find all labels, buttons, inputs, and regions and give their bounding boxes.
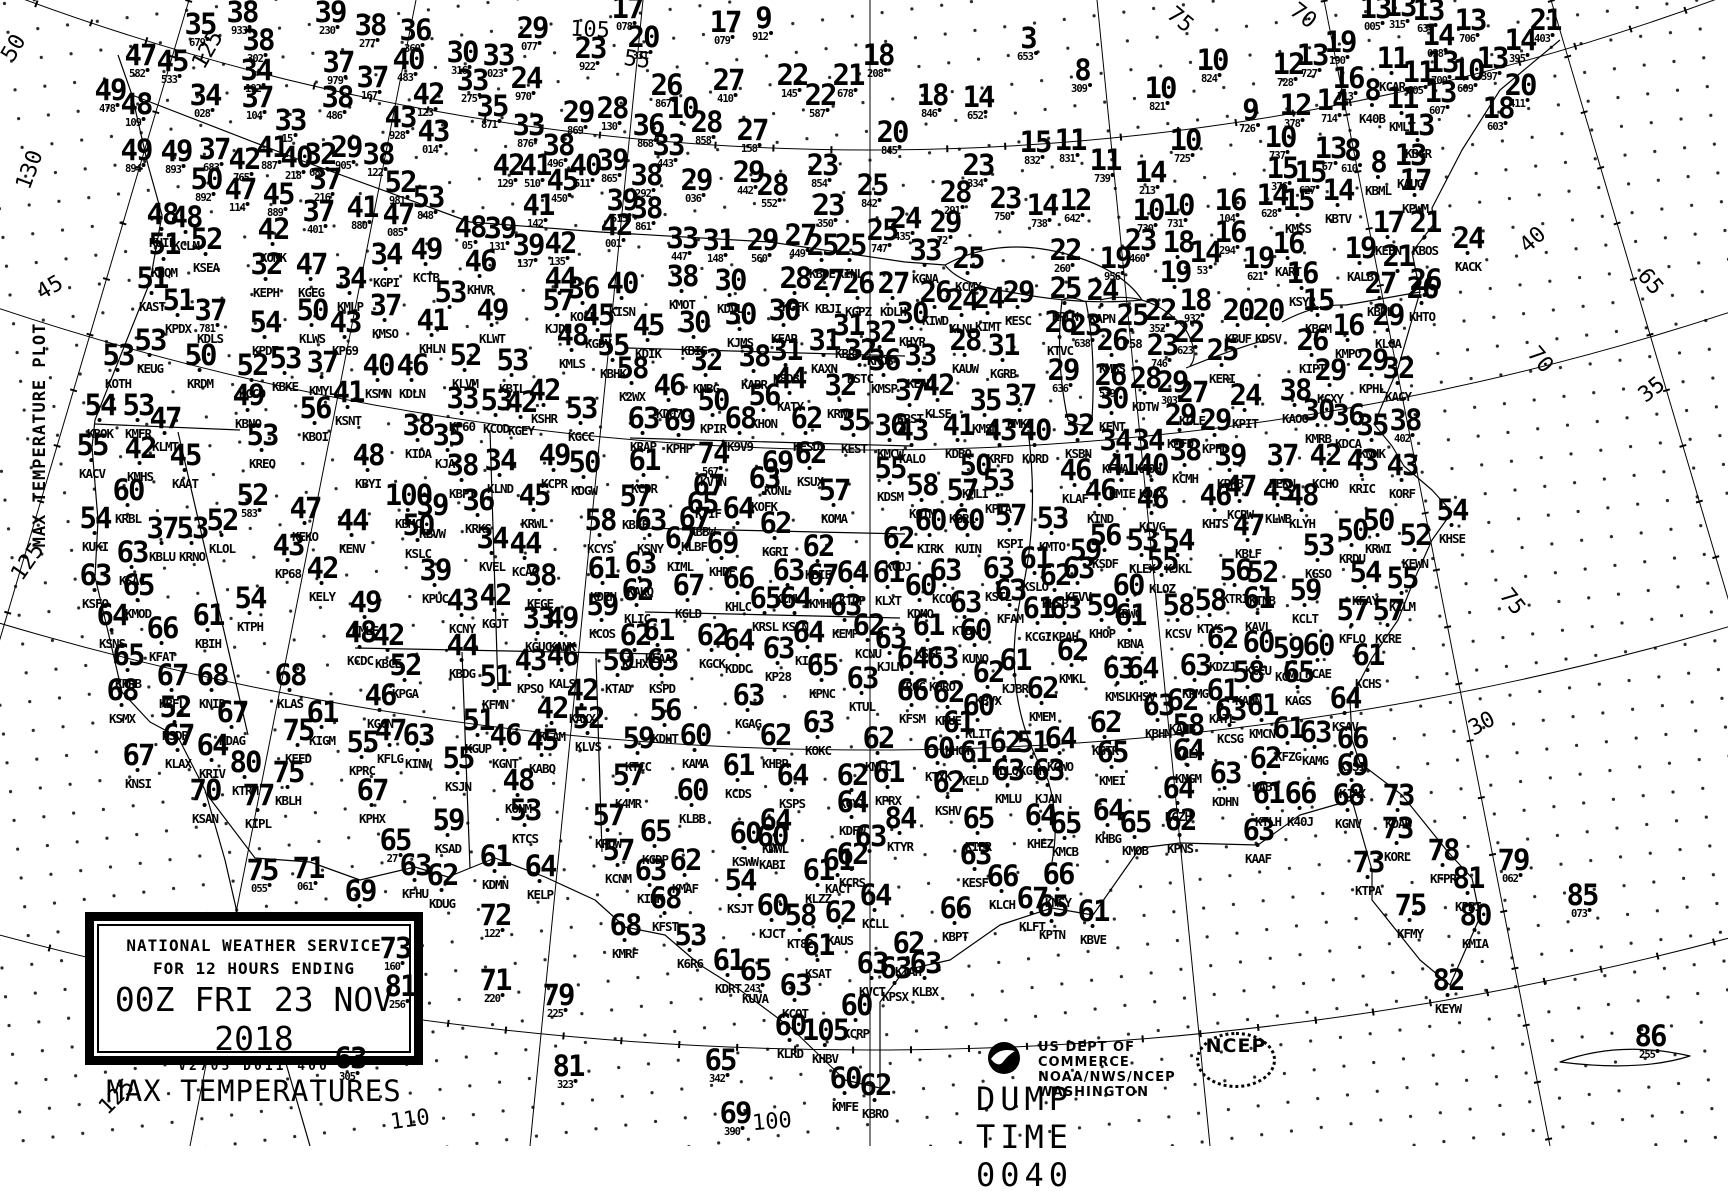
station-num: 587: [809, 108, 825, 120]
station-plot: 49893: [161, 139, 192, 171]
station-temp: 42: [480, 583, 511, 608]
station-dot-icon: [1376, 533, 1380, 537]
station-temp: 51: [163, 288, 194, 313]
station-dot-icon: [793, 998, 797, 1002]
station-dot-icon: [1140, 681, 1144, 685]
station-id: KBPT: [940, 929, 971, 944]
station-plot: 63KMLU: [993, 758, 1024, 806]
station-dot-icon: [1121, 271, 1125, 275]
station-dot-icon: [258, 508, 262, 512]
station-temp: 46: [1137, 486, 1168, 511]
station-dot-icon: [120, 703, 124, 707]
station-temp: 52: [207, 508, 238, 533]
station-dot-icon: [263, 335, 267, 339]
station-plot: 44KENV: [337, 508, 368, 556]
station-id: KLZZ: [803, 891, 834, 906]
station-num: 028: [194, 108, 210, 120]
station-plot: 23750: [990, 186, 1021, 218]
station-mid: 832: [1020, 155, 1051, 162]
station-dot-icon: [1150, 511, 1154, 515]
station-plot: 10725: [1170, 128, 1201, 160]
station-temp: 63: [647, 648, 678, 673]
station-temp: 75: [283, 718, 314, 743]
station-plot: 61KDMN: [480, 844, 511, 892]
station-dot-icon: [574, 1079, 578, 1083]
station-dot-icon: [731, 35, 735, 39]
station-plot: 11739: [1090, 148, 1121, 180]
station-temp: 79: [1498, 848, 1529, 873]
station-dot-icon: [1071, 263, 1075, 267]
station-plot: 37979: [323, 50, 354, 82]
station-temp: 64: [723, 496, 754, 521]
station-plot: 64: [723, 496, 754, 528]
station-temp: 55: [347, 730, 378, 755]
station-id: KDHT: [650, 731, 681, 746]
station-temp: 48: [503, 768, 534, 793]
station-dot-icon: [1193, 678, 1197, 682]
station-mid: 747: [867, 243, 898, 250]
station-id: KLGA: [1373, 336, 1404, 351]
station-temp: 28: [757, 173, 788, 198]
station-plot: 24970: [511, 66, 542, 98]
station-temp: 64: [837, 790, 868, 815]
station-temp: 54: [235, 586, 266, 611]
station-dot-icon: [826, 293, 830, 297]
station-dot-icon: [478, 274, 482, 278]
station-dot-icon: [376, 378, 380, 382]
station-temp: 47: [1233, 513, 1264, 538]
station-plot: 41142: [523, 193, 554, 225]
station-temp: 64: [97, 603, 128, 628]
station-num: 821: [1149, 101, 1165, 113]
station-plot: 52583: [237, 483, 268, 515]
station-plot: 71061: [293, 856, 324, 888]
station-temp: 62: [1027, 676, 1058, 701]
station-plot: 60KIRK: [915, 508, 946, 556]
station-temp: 15: [1283, 188, 1314, 213]
station-plot: 42KGJT: [480, 583, 511, 631]
station-dot-icon: [178, 74, 182, 78]
station-dot-icon: [296, 743, 300, 747]
station-id: K6R6: [675, 956, 706, 971]
station-temp: 61: [913, 613, 944, 638]
station-temp: 86: [1635, 1024, 1666, 1049]
station-dot-icon: [536, 631, 540, 635]
station-dot-icon: [1069, 383, 1073, 387]
station-temp: 63: [763, 636, 794, 661]
station-id: K9V9: [725, 439, 756, 454]
station-num: 014: [422, 144, 438, 156]
station-temp: 60: [1243, 630, 1274, 655]
station-num: 53: [1197, 265, 1208, 277]
station-temp: 43: [985, 418, 1016, 443]
station-num: 483: [397, 72, 413, 84]
station-temp: 38: [243, 28, 274, 53]
station-plot: 16294: [1215, 220, 1246, 252]
station-dot-icon: [1333, 161, 1337, 165]
station-dot-icon: [591, 178, 595, 182]
station-mid: 230: [315, 25, 346, 32]
station-temp: 38: [322, 85, 353, 110]
station-temp: 65: [1037, 894, 1068, 919]
station-dot-icon: [303, 521, 307, 525]
station-dot-icon: [1191, 153, 1195, 157]
station-temp: 60: [1303, 633, 1334, 658]
station-plot: 43KP68: [273, 533, 304, 581]
station-plot: 38486: [322, 85, 353, 117]
station-num: 255: [1639, 1049, 1655, 1061]
station-temp: 48: [557, 323, 588, 348]
station-dot-icon: [908, 403, 912, 407]
station-dot-icon: [556, 313, 560, 317]
station-id: KMLS: [557, 356, 588, 371]
station-temp: 32: [1063, 413, 1094, 438]
station-dot-icon: [504, 68, 508, 72]
station-plot: 50KRDU: [1337, 518, 1368, 566]
station-dot-icon: [246, 202, 250, 206]
station-plot: 65KMOB: [1120, 810, 1151, 858]
station-num: 331: [632, 50, 648, 62]
station-dot-icon: [1081, 213, 1085, 217]
station-plot: 55KACV: [77, 433, 108, 481]
station-num: 275: [461, 93, 477, 105]
station-temp: 63: [803, 710, 834, 735]
station-temp: 11: [1055, 128, 1086, 153]
station-temp: 42: [537, 696, 568, 721]
station-temp: 12: [1280, 93, 1311, 118]
station-plot: 64KCLL: [860, 883, 891, 931]
station-temp: 28: [950, 328, 981, 353]
station-plot: 28552: [757, 173, 788, 205]
station-plot: 53KBKE: [270, 346, 301, 394]
station-id: KUKI: [80, 539, 111, 554]
station-temp: 60: [830, 1066, 861, 1091]
station-mid: 078: [612, 21, 643, 28]
station-temp: 53: [413, 185, 444, 210]
station-plot: 59KTAD: [603, 648, 634, 696]
station-temp: 14: [963, 85, 994, 110]
station-num: 078: [616, 21, 632, 33]
station-num: 714: [1321, 113, 1337, 125]
station-plot: 18208: [863, 43, 894, 75]
station-temp: 64: [860, 883, 891, 908]
station-dot-icon: [768, 253, 772, 257]
station-num: 832: [1024, 155, 1040, 167]
station-plot: 79062: [1498, 848, 1529, 880]
station-temp: 49: [161, 139, 192, 164]
station-temp: 54: [85, 393, 116, 418]
station-id: KIPL: [243, 816, 274, 831]
station-temp: 53: [675, 923, 706, 948]
station-temp: 30: [769, 298, 800, 323]
station-dot-icon: [313, 421, 317, 425]
station-id: K40J: [1285, 814, 1316, 829]
station-plot: 66KFSM: [897, 678, 928, 726]
station-id: KELY: [307, 589, 338, 604]
station-dot-icon: [1263, 771, 1267, 775]
station-plot: 22352: [1145, 298, 1176, 330]
station-dot-icon: [848, 258, 852, 262]
station-dot-icon: [493, 689, 497, 693]
station-temp: 47: [1225, 474, 1256, 499]
station-dot-icon: [726, 973, 730, 977]
station-temp: 57: [995, 503, 1026, 528]
station-mid: 854: [807, 178, 838, 185]
station-temp: 42: [545, 231, 576, 256]
station-temp: 27: [1365, 271, 1396, 296]
station-mid: 148: [703, 253, 734, 260]
station-plot: 68KMRF: [610, 913, 641, 961]
station-temp: 54: [1437, 498, 1468, 523]
station-temp: 22: [777, 63, 808, 88]
station-id: KSMX: [107, 711, 138, 726]
station-dot-icon: [966, 533, 970, 537]
station-temp: 63: [773, 558, 804, 583]
station-temp: 53: [1037, 506, 1068, 531]
station-mid: 845: [877, 145, 908, 152]
station-dot-icon: [206, 37, 210, 41]
station-id: KSJN: [443, 779, 474, 794]
station-temp: 23: [990, 186, 1021, 211]
station-num: 713: [1337, 91, 1353, 103]
station-plot: 33023: [483, 43, 514, 75]
station-num: 845: [881, 145, 897, 157]
station-temp: 61: [723, 753, 754, 778]
station-dot-icon: [710, 648, 714, 652]
legend-agency-line: NATIONAL WEATHER SERVICE: [99, 936, 409, 955]
station-temp: 60: [113, 478, 144, 503]
station-plot: 42001: [601, 213, 632, 245]
station-dot-icon: [1350, 543, 1354, 547]
station-dot-icon: [622, 238, 626, 242]
station-temp: 75: [273, 760, 304, 785]
station-num: 073: [1571, 908, 1587, 920]
station-dot-icon: [1088, 83, 1092, 87]
station-temp: 13: [1297, 43, 1328, 68]
station-temp: 69: [1337, 753, 1368, 778]
station-dot-icon: [1063, 621, 1067, 625]
station-mid: 728: [1273, 77, 1304, 84]
station-temp: 39: [485, 216, 516, 241]
station-plot: 51KFMN: [480, 664, 511, 712]
station-mid: 552: [757, 198, 788, 205]
station-id: KMOB: [1120, 843, 1151, 858]
station-temp: 43: [273, 533, 304, 558]
station-temp: 43: [330, 310, 361, 335]
station-dot-icon: [416, 748, 420, 752]
station-plot: 54KTPH: [235, 586, 266, 634]
station-temp: 42: [413, 82, 444, 107]
station-temp: 37: [310, 167, 341, 192]
station-dot-icon: [1441, 863, 1445, 867]
station-dot-icon: [216, 323, 220, 327]
station-mid: 167: [357, 90, 388, 97]
station-dot-icon: [852, 433, 856, 437]
station-dot-icon: [1110, 353, 1114, 357]
station-temp: 71: [293, 856, 324, 881]
station-dot-icon: [286, 558, 290, 562]
station-dot-icon: [564, 1008, 568, 1012]
station-num: 230: [319, 25, 335, 37]
station-plot: 61KTLH: [1253, 781, 1284, 829]
station-temp: 67: [217, 700, 248, 725]
station-id: KLAS: [275, 696, 306, 711]
station-dot-icon: [1184, 218, 1188, 222]
station-id: KCOS: [587, 626, 618, 641]
station-temp: 80: [230, 750, 261, 775]
station-temp: 8: [1359, 78, 1385, 103]
station-id: KBHM: [1143, 726, 1174, 741]
station-dot-icon: [1111, 173, 1115, 177]
legend-box: NATIONAL WEATHER SERVICE FOR 12 HOURS EN…: [85, 912, 423, 1065]
station-dot-icon: [823, 1043, 827, 1047]
station-dot-icon: [746, 708, 750, 712]
station-temp: 69: [345, 879, 376, 904]
station-num: 894: [125, 163, 141, 175]
station-num: 603: [1487, 121, 1503, 133]
station-temp: 50: [185, 343, 216, 368]
station-dot-icon: [711, 413, 715, 417]
station-num: 055: [251, 883, 267, 895]
station-temp: 30: [725, 302, 756, 327]
station-dot-icon: [378, 90, 382, 94]
station-dot-icon: [283, 371, 287, 375]
station-temp: 49: [547, 606, 578, 631]
station-dot-icon: [1413, 548, 1417, 552]
station-temp: 15: [1267, 156, 1298, 181]
station-dot-icon: [738, 893, 742, 897]
station-dot-icon: [538, 588, 542, 592]
station-dot-icon: [736, 521, 740, 525]
station-plot: 40483: [393, 47, 424, 79]
station-dot-icon: [360, 755, 364, 759]
station-plot: 57KCNM: [603, 838, 634, 886]
station-temp: 29: [930, 210, 961, 235]
station-temp: 62: [670, 848, 701, 873]
station-dot-icon: [798, 928, 802, 932]
station-plot: 50892: [191, 167, 222, 199]
station-id: KBTV: [1323, 211, 1354, 226]
station-temp: 65: [807, 653, 838, 678]
station-plot: 81256: [385, 974, 416, 1006]
station-plot: 62KMEM: [1027, 676, 1058, 724]
station-temp: 29: [1357, 348, 1388, 373]
station-dot-icon: [1208, 265, 1212, 269]
station-id: KLXT: [873, 593, 904, 608]
station-temp: 41: [943, 413, 974, 438]
station-mid: 603: [1483, 121, 1514, 128]
station-plot: 60KRBL: [113, 478, 144, 526]
station-dot-icon: [720, 556, 724, 560]
station-plot: 43014: [418, 119, 449, 151]
station-dot-icon: [822, 353, 826, 357]
station-plot: 34028: [190, 83, 221, 115]
station-mid: 243: [740, 983, 771, 990]
station-dot-icon: [641, 431, 645, 435]
station-dot-icon: [1323, 468, 1327, 472]
station-plot: 42135: [545, 231, 576, 263]
station-temp: 53: [983, 468, 1014, 493]
station-num: 460: [1129, 253, 1145, 265]
station-plot: 63KDHN: [1210, 761, 1241, 809]
station-plot: 62KMKL: [1057, 638, 1088, 686]
station-dot-icon: [460, 411, 464, 415]
station-dot-icon: [973, 765, 977, 769]
station-temp: 16: [1215, 220, 1246, 245]
station-temp: 63: [80, 563, 111, 588]
station-dot-icon: [910, 326, 914, 330]
station-temp: 62: [1207, 626, 1238, 651]
station-temp: 52: [237, 483, 268, 508]
station-temp: 55: [875, 456, 906, 481]
station-dot-icon: [434, 107, 438, 111]
station-plot: 8KBML: [1365, 150, 1391, 198]
station-dot-icon: [1278, 208, 1282, 212]
station-dot-icon: [366, 468, 370, 472]
station-temp: 69: [664, 408, 695, 433]
station-plot: 63305: [335, 1046, 366, 1078]
station-dot-icon: [667, 398, 671, 402]
station-temp: 53: [135, 328, 166, 353]
station-dot-icon: [866, 638, 870, 642]
station-temp: 67: [163, 723, 194, 748]
station-temp: 36: [463, 488, 494, 513]
station-dot-icon: [736, 653, 740, 657]
station-plot: 65KMCB: [1050, 811, 1081, 859]
station-plot: 65342: [705, 1048, 736, 1080]
station-dot-icon: [523, 823, 527, 827]
station-dot-icon: [616, 863, 620, 867]
station-plot: 63KFAM: [995, 578, 1026, 626]
station-temp: 38: [525, 563, 556, 588]
station-plot: 37KMSO: [370, 293, 401, 341]
station-temp: 37: [357, 65, 388, 90]
station-temp: 72: [480, 903, 511, 928]
station-plot: 32KEPH: [251, 252, 282, 300]
station-dot-icon: [1186, 763, 1190, 767]
station-plot: 13607: [1425, 80, 1456, 112]
station-plot: 43KORF: [1387, 453, 1418, 501]
station-temp: 59: [603, 648, 634, 673]
station-plot: 75KBLH: [273, 760, 304, 808]
station-dot-icon: [1446, 993, 1450, 997]
station-id: KIDA: [403, 446, 434, 461]
station-dot-icon: [963, 353, 967, 357]
station-temp: 84: [885, 806, 916, 831]
station-dot-icon: [203, 803, 207, 807]
station-dot-icon: [1318, 68, 1322, 72]
station-dot-icon: [623, 938, 627, 942]
station-id: KCHO: [1310, 476, 1341, 491]
station-id: KGJT: [480, 616, 511, 631]
station-temp: 55: [77, 433, 108, 458]
station-temp: 57: [819, 478, 850, 503]
station-dot-icon: [220, 533, 224, 537]
station-temp: 63: [780, 973, 811, 998]
station-temp: 13: [1425, 80, 1456, 105]
station-plot: 67KGLD: [673, 573, 704, 621]
station-plot: 71220: [480, 968, 511, 1000]
station-mid: 621: [1243, 271, 1274, 278]
station-num: 410: [717, 93, 733, 105]
station-dot-icon: [1370, 103, 1374, 107]
station-num: 739: [1094, 173, 1110, 185]
station-dot-icon: [1336, 203, 1340, 207]
station-dot-icon: [350, 533, 354, 537]
station-dot-icon: [1376, 175, 1380, 179]
station-mid: 395: [1505, 53, 1536, 60]
station-id: KTPH: [235, 619, 266, 634]
